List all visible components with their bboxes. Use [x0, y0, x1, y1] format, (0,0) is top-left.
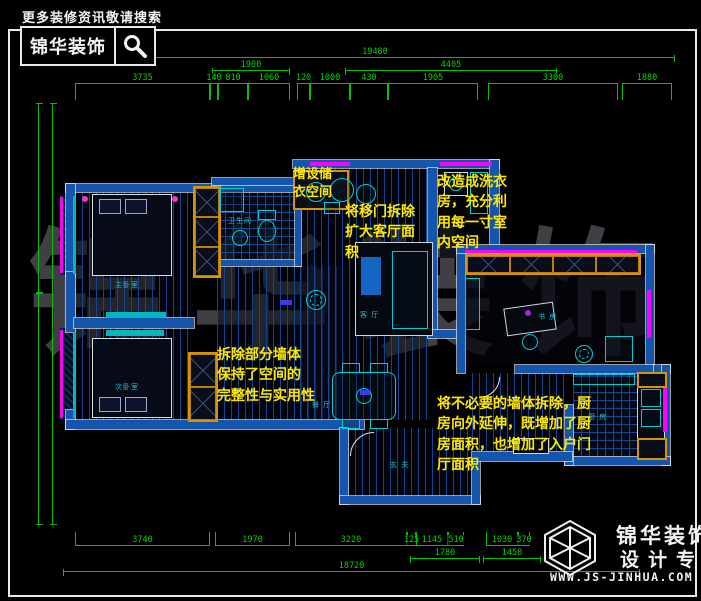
wireframe-cube-icon: [540, 518, 600, 578]
dimension-top_level3: 3300: [488, 83, 618, 84]
dimension-layer: 1948019004405373514081010601201000430190…: [0, 0, 701, 601]
dimension-top_level3: 810: [218, 83, 248, 84]
dimension-top_level3: 3735: [75, 83, 210, 84]
dimension-left_vertical: [38, 103, 39, 293]
footer-tagline: 设计专家: [620, 545, 701, 572]
dimension-bottom_level1: 1030: [486, 545, 518, 546]
annotation-storage: 增设储 衣空间: [293, 166, 332, 202]
dimension-top_level3: 1000: [310, 83, 350, 84]
dimension-top_level3: 140: [210, 83, 218, 84]
dimension-top_level2: 1900: [212, 70, 290, 71]
dimension-bottom_level1: 1970: [215, 545, 290, 546]
dimension-bottom_level1: 370: [518, 545, 530, 546]
floorplan-screenshot: 更多装修资讯敬请搜索 锦华装饰 锦华装饰: [0, 0, 701, 601]
dimension-bottom_level1: 3740: [75, 545, 210, 546]
dimension-top_level3: 120: [297, 83, 310, 84]
dimension-bottom_level1: 510: [448, 545, 464, 546]
dimension-top_level3: 1880: [622, 83, 672, 84]
dimension-top_level3: 1905: [388, 83, 478, 84]
dimension-top_level2: 4405: [345, 70, 557, 71]
footer-logo: 锦华装饰 设计专家 WWW.JS-JINHUA.COM: [540, 518, 690, 588]
dimension-top_total: 19480: [75, 57, 675, 58]
dimension-bottom_level2: 1780: [410, 558, 480, 559]
search-box: 锦华装饰: [20, 26, 156, 66]
dimension-bottom_level2: 1450: [483, 558, 541, 559]
annotation-kitchen-extend: 将不必要的墙体拆除，厨 房向外延伸，既增加了厨 房面积，也增加了入户门 厅面积: [437, 394, 591, 475]
dimension-bottom_level1: 1145: [416, 545, 448, 546]
annotation-walls-removed: 拆除部分墙体 保持了空间的 完整性与实用性: [217, 345, 315, 406]
dimension-top_level3: 430: [350, 83, 388, 84]
header-tagline: 更多装修资讯敬请搜索: [22, 7, 162, 26]
brand-name: 锦华装饰: [22, 28, 114, 64]
dimension-bottom_level1: 3220: [295, 545, 407, 546]
footer-website: WWW.JS-JINHUA.COM: [550, 570, 693, 584]
magnifier-icon: [116, 28, 154, 64]
dimension-left_vertical: [38, 293, 39, 525]
dimension-left_vertical: [52, 103, 53, 525]
annotation-sliding-door: 将移门拆除 扩大客厅面 积: [345, 202, 415, 263]
dimension-top_level3: 1060: [248, 83, 290, 84]
annotation-laundry: 改造成洗衣 房，充分利 用每一寸室 内空间: [437, 172, 507, 253]
dimension-bottom_level1: 125: [407, 545, 416, 546]
